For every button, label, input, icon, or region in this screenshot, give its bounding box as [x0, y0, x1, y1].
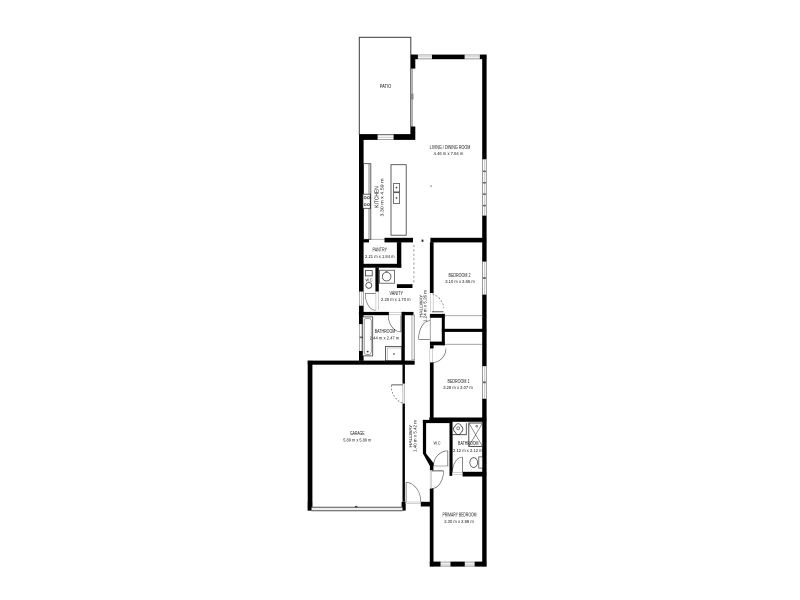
svg-text:3.30 m x 4.59 m: 3.30 m x 4.59 m	[379, 178, 384, 216]
svg-text:W.C: W.C	[434, 441, 441, 446]
svg-text:2.21 m x 1.84 m: 2.21 m x 1.84 m	[365, 254, 395, 259]
svg-text:1.24 m x 5.26 m: 1.24 m x 5.26 m	[423, 289, 428, 322]
svg-text:3.28 m x 3.07 m: 3.28 m x 3.07 m	[443, 385, 473, 390]
svg-text:3.10 m x 3.66 m: 3.10 m x 3.66 m	[445, 279, 475, 284]
svg-text:2.20 m x 1.70 m: 2.20 m x 1.70 m	[381, 297, 411, 302]
svg-text:PANTRY: PANTRY	[373, 248, 388, 254]
svg-text:2.30 m x 2.98 m: 2.30 m x 2.98 m	[444, 519, 474, 524]
svg-text:BATHROOM: BATHROOM	[375, 329, 396, 335]
svg-text:4.46 m x 7.54 m: 4.46 m x 7.54 m	[434, 151, 464, 156]
svg-text:VANITY: VANITY	[390, 291, 404, 297]
svg-text:5.89 m x 5.88 m: 5.89 m x 5.88 m	[343, 438, 371, 443]
svg-text:BATHROOM: BATHROOM	[458, 441, 479, 447]
svg-text:W.C: W.C	[366, 277, 373, 282]
svg-text:1.40 m x 5.42 m: 1.40 m x 5.42 m	[412, 419, 417, 452]
svg-text:2.44 m x 2.47 m: 2.44 m x 2.47 m	[370, 335, 400, 340]
svg-text:GARAGE: GARAGE	[350, 431, 365, 437]
svg-text:PRIMARY BEDROOM: PRIMARY BEDROOM	[443, 512, 477, 518]
svg-text:BEDROOM 1: BEDROOM 1	[448, 379, 470, 385]
svg-text:PATIO: PATIO	[380, 84, 391, 90]
svg-text:BEDROOM 2: BEDROOM 2	[449, 273, 471, 279]
svg-text:2.12 m x 2.12 m: 2.12 m x 2.12 m	[453, 448, 483, 453]
